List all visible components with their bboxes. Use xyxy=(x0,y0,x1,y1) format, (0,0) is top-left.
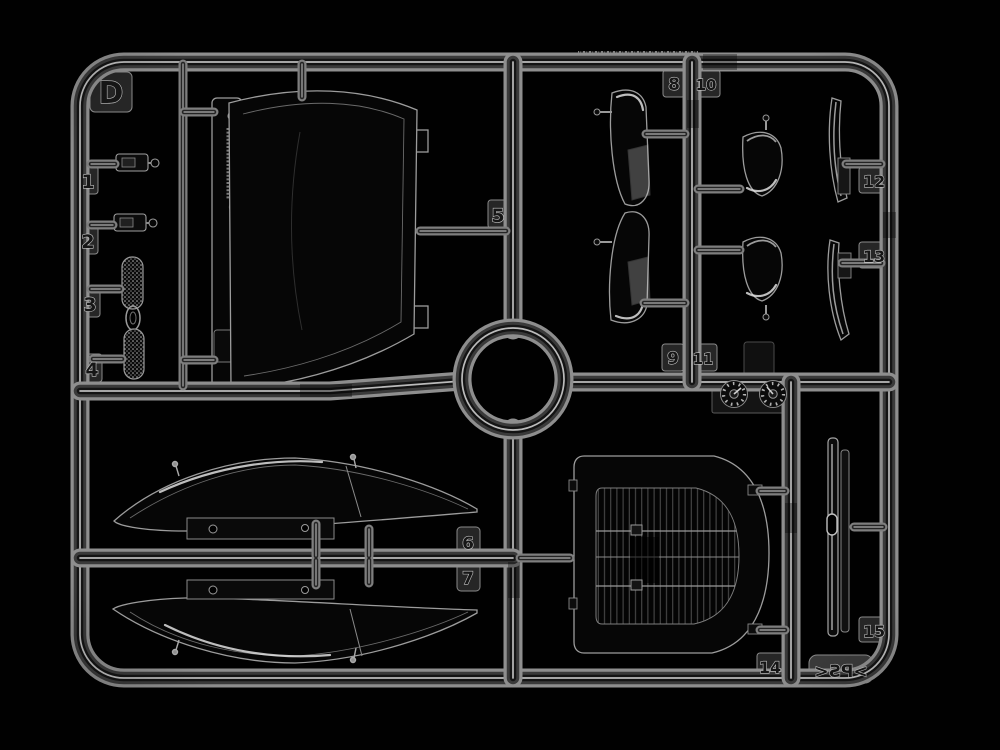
tab-number-5: 5 xyxy=(491,205,504,227)
tab-number-8: 8 xyxy=(668,75,680,95)
tab-number-10: 10 xyxy=(696,76,717,94)
part-lamp-cover-right-bottom xyxy=(743,237,782,320)
windshield-glass xyxy=(229,91,417,389)
part-rear-window xyxy=(569,456,769,653)
tab-number-4: 4 xyxy=(85,359,98,381)
window-clip-detail xyxy=(631,525,642,535)
windshield-mount-tab xyxy=(413,306,428,328)
tab-number-9: 9 xyxy=(667,349,679,369)
part-side-window-lower xyxy=(113,580,477,663)
tab-number-6: 6 xyxy=(462,534,474,554)
part-lamp-cover-left-top xyxy=(594,90,650,205)
material-mark-text: >PS< xyxy=(814,662,867,682)
part-fluted-lens-3 xyxy=(122,257,143,309)
clear-parts-sprue-photo: D 1 2 3 4 5 6 7 8 10 9 11 12 13 14 15 >P… xyxy=(0,0,1000,750)
tab-number-15: 15 xyxy=(863,622,885,641)
tab-number-14: 14 xyxy=(759,658,781,677)
tab-number-7: 7 xyxy=(462,569,474,589)
tab-number-12: 12 xyxy=(863,172,885,191)
part-trim-strip-12 xyxy=(829,98,850,202)
mold-date-wheel-icon xyxy=(721,381,748,408)
photo-stage: D 1 2 3 4 5 6 7 8 10 9 11 12 13 14 15 >P… xyxy=(0,0,1000,750)
sprue-letter: D xyxy=(99,76,124,111)
part-lamp-cover-right-top xyxy=(743,115,782,196)
window-clip-detail xyxy=(631,580,642,590)
blank-tab xyxy=(744,342,774,376)
tab-number-2: 2 xyxy=(81,231,94,253)
tab-number-3: 3 xyxy=(83,294,96,316)
tab-number-13: 13 xyxy=(863,247,885,266)
mold-date-wheel-icon xyxy=(760,381,787,408)
part-small-lens-2 xyxy=(114,214,157,231)
part-small-lens-1 xyxy=(116,154,159,171)
defroster-grid xyxy=(596,488,739,624)
tab-number-1: 1 xyxy=(81,171,94,193)
strip-slot-detail xyxy=(827,514,837,535)
part-trim-strip-13 xyxy=(828,240,851,340)
runner-center-ring xyxy=(462,328,564,430)
tab-number-11: 11 xyxy=(693,350,714,368)
part-side-window-upper xyxy=(114,458,477,539)
part-lens-strip-15 xyxy=(827,438,849,636)
part-windshield xyxy=(212,91,428,389)
part-fluted-lens-4 xyxy=(124,329,144,379)
